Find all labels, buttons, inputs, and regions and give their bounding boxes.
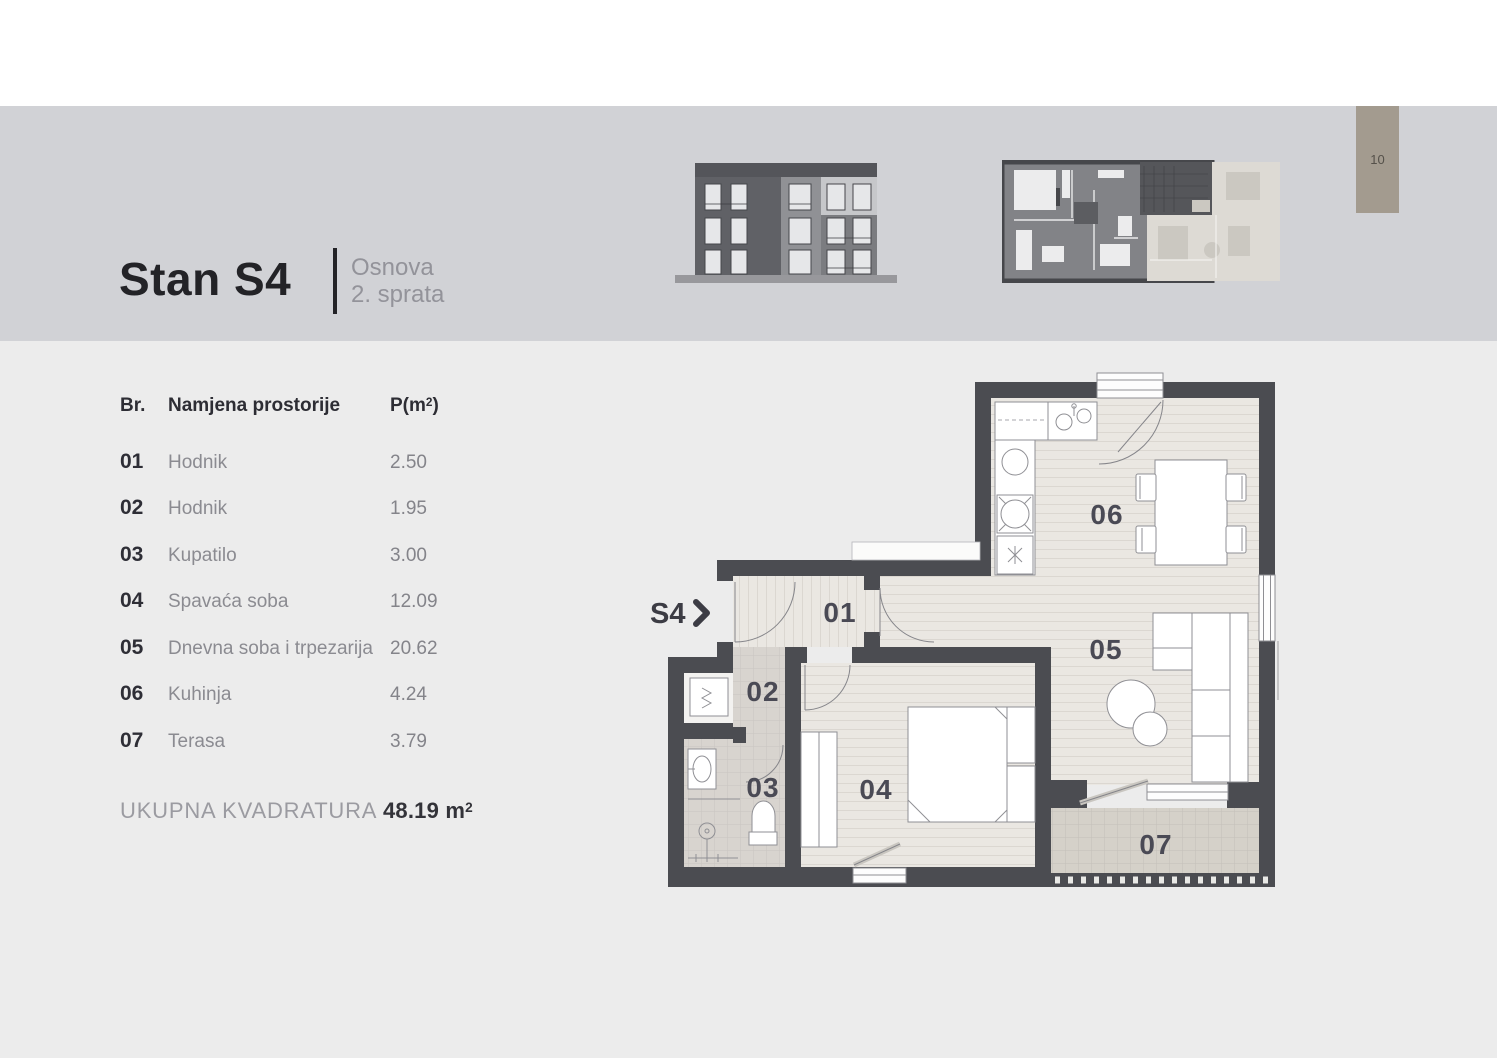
brochure-page: 10 Stan S4 Osnova 2. sprata [0,0,1497,1058]
page-number: 10 [1370,152,1384,167]
row-name: Kuhinja [168,684,231,706]
room-label-01: 01 [823,597,856,628]
row-name: Kupatilo [168,545,237,567]
row-area: 20.62 [390,638,438,660]
row-area: 2.50 [390,452,427,474]
total-value: 48.19 m2 [383,798,473,823]
bathroom-sink [688,749,716,789]
row-area: 1.95 [390,498,427,520]
row-area: 3.79 [390,731,427,753]
row-number: 04 [120,589,143,613]
row-name: Dnevna soba i trpezarija [168,638,373,660]
column-header-area: P(m2) [390,395,439,417]
row-number: 03 [120,543,143,567]
row-number: 06 [120,682,143,706]
row-name: Hodnik [168,498,227,520]
title-divider [333,248,337,314]
room-label-02: 02 [746,676,779,707]
wardrobe [801,732,837,847]
row-name: Hodnik [168,452,227,474]
entrance-label: S4 [650,598,685,630]
column-header-number: Br. [120,395,145,417]
page-title: Stan S4 [119,252,291,306]
row-area: 4.24 [390,684,427,706]
row-area: 12.09 [390,591,438,613]
page-number-tab: 10 [1356,106,1399,213]
row-number: 05 [120,636,143,660]
room-label-06: 06 [1090,499,1123,530]
subtitle-line-2: 2. sprata [351,281,444,308]
page-subtitle: Osnova 2. sprata [351,254,444,308]
row-number: 01 [120,450,143,474]
entrance-arrow-icon [696,602,707,624]
row-number: 07 [120,729,143,753]
row-area: 3.00 [390,545,427,567]
room-label-07: 07 [1139,829,1172,860]
row-number: 02 [120,496,143,520]
row-name: Spavaća soba [168,591,288,613]
room-label-05: 05 [1089,634,1122,665]
coffee-table [1133,712,1167,746]
subtitle-line-1: Osnova [351,254,444,281]
building-elevation-image [675,158,897,288]
floor-overview-thumbnail [1002,160,1280,283]
total-label: UKUPNA KVADRATURA [120,798,376,823]
room-label-03: 03 [746,772,779,803]
row-name: Terasa [168,731,225,753]
total-area-line: UKUPNA KVADRATURA 48.19 m2 [120,798,473,824]
column-header-name: Namjena prostorije [168,395,340,417]
washing-machine-icon [690,678,728,716]
floor-plan: 01 02 03 04 05 06 07 S4 [650,370,1295,910]
room-label-04: 04 [859,774,892,805]
